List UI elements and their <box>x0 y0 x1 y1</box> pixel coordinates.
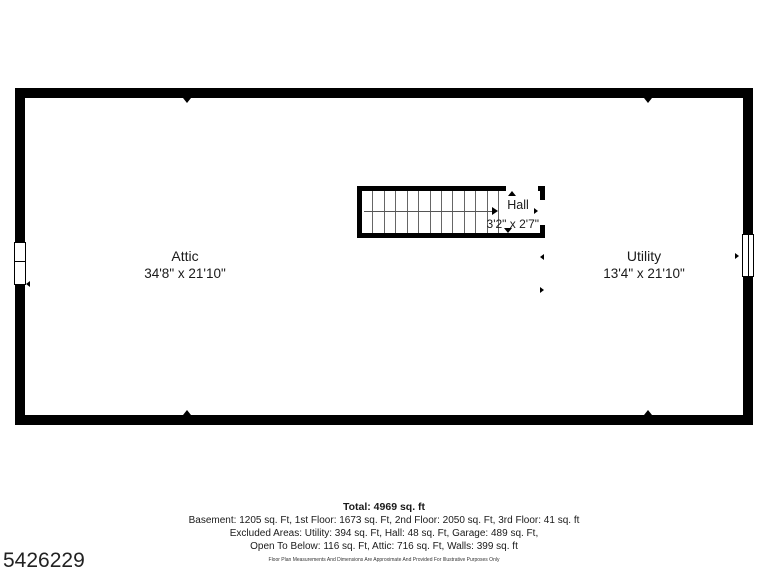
hall-opening-marker-up <box>508 191 516 196</box>
summary-excluded-2: Open To Below: 116 sq. Ft, Attic: 716 sq… <box>0 540 768 553</box>
bottom-wall-marker-right <box>644 410 652 415</box>
attic-room-name: Attic <box>85 247 285 265</box>
bottom-wall-marker-left <box>183 410 191 415</box>
staircase-block: Hall 3'2" x 2'7" <box>357 186 545 238</box>
hall-room-name: Hall <box>496 198 540 212</box>
utility-room-label: Utility 13'4" x 21'10" <box>544 247 744 282</box>
stair-treads <box>362 191 499 233</box>
stair-tread <box>373 191 384 233</box>
top-wall-marker-left <box>183 98 191 103</box>
stair-tread <box>396 191 407 233</box>
utility-room-dimensions: 13'4" x 21'10" <box>544 265 744 282</box>
summary-excluded: Excluded Areas: Utility: 394 sq. Ft, Hal… <box>0 527 768 540</box>
stair-tread <box>465 191 476 233</box>
hall-room-dimensions: 3'2" x 2'7" <box>487 217 539 231</box>
attic-room-label: Attic 34'8" x 21'10" <box>85 247 285 282</box>
stair-tread <box>453 191 464 233</box>
attic-room-dimensions: 34'8" x 21'10" <box>85 265 285 282</box>
window-left-marker <box>26 281 30 287</box>
summary-total: Total: 4969 sq. ft <box>0 501 768 514</box>
summary-floors: Basement: 1205 sq. Ft, 1st Floor: 1673 s… <box>0 514 768 527</box>
stair-tread <box>431 191 442 233</box>
window-sash <box>748 235 749 276</box>
window-left-wall <box>14 242 26 285</box>
staircase-inner: Hall 3'2" x 2'7" <box>362 191 540 233</box>
top-wall-marker-right <box>644 98 652 103</box>
stair-run-line <box>364 211 494 212</box>
area-summary: Total: 4969 sq. ft Basement: 1205 sq. Ft… <box>0 501 768 564</box>
utility-room-name: Utility <box>544 247 744 265</box>
stair-tread <box>442 191 453 233</box>
window-sash <box>15 261 25 262</box>
stair-tread <box>419 191 430 233</box>
summary-disclaimer: Floor Plan Measurements And Dimensions A… <box>0 556 768 564</box>
stair-tread <box>408 191 419 233</box>
stair-tread <box>385 191 396 233</box>
mid-opening-marker-right <box>540 287 544 293</box>
listing-id: 5426229 <box>3 549 85 573</box>
hall-right-opening <box>540 200 545 225</box>
floor-plan-page: Hall 3'2" x 2'7" Attic 34'8" x 21'10" Ut… <box>0 0 768 576</box>
stair-tread <box>362 191 373 233</box>
